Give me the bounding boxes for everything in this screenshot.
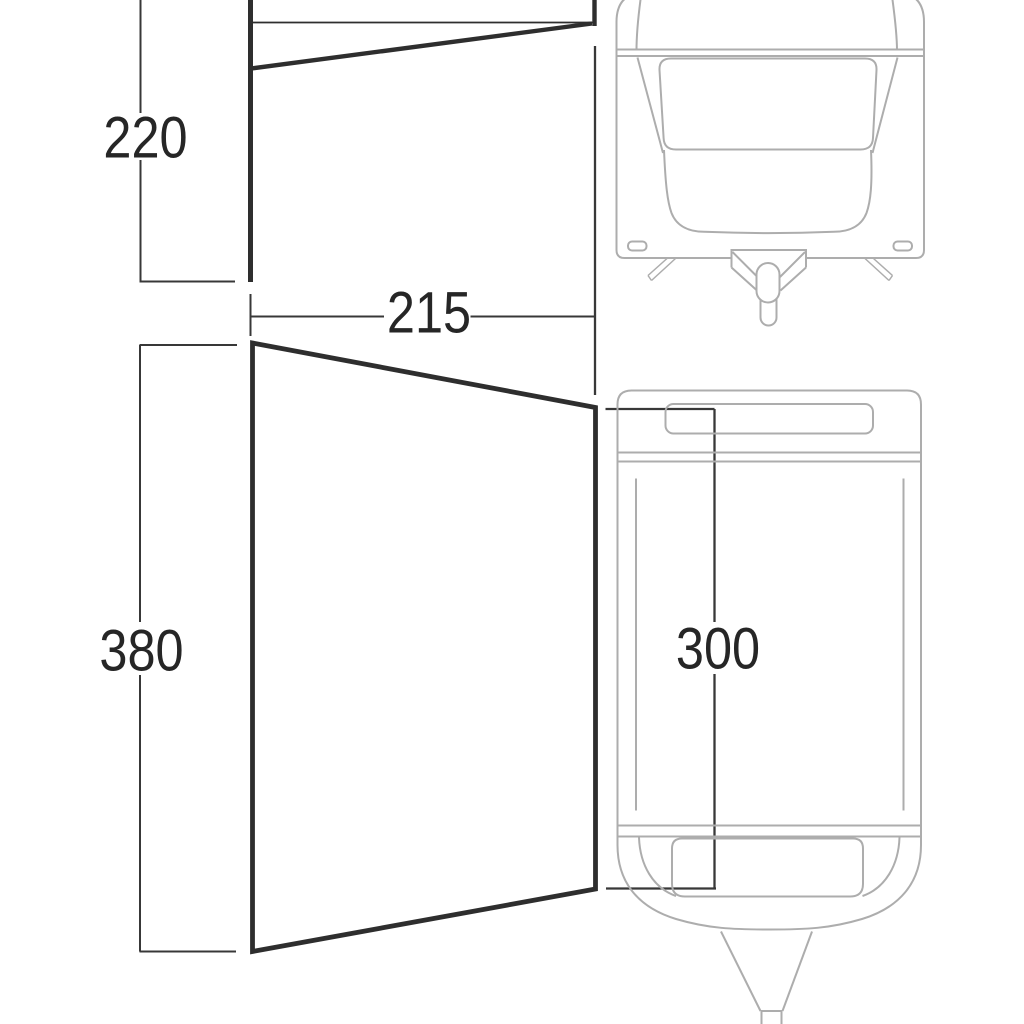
svg-text:380: 380 [99,618,183,683]
svg-text:300: 300 [676,616,760,681]
svg-text:220: 220 [103,105,187,170]
svg-text:215: 215 [387,280,471,345]
